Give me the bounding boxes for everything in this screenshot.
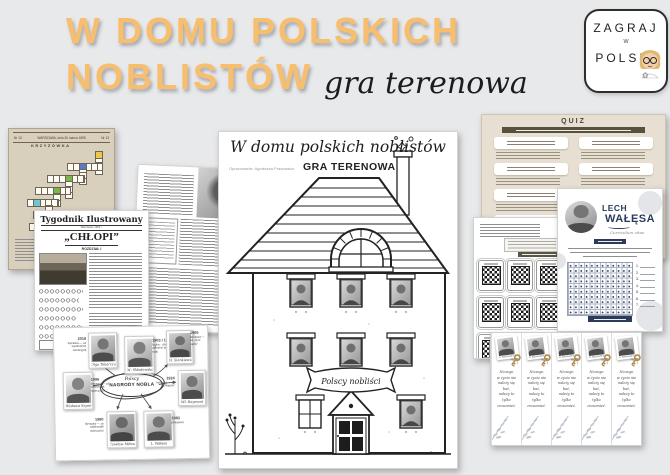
answer-line <box>640 277 655 281</box>
qr-label <box>484 300 498 302</box>
mindmap-card-meta: 1996 literacka — za całokształt twórczoś… <box>91 377 113 393</box>
crossword-run <box>27 199 59 207</box>
walesa-subtitle: Curriculum vitae <box>610 230 644 235</box>
qr-code <box>511 303 530 322</box>
bookmark: M. Skłodowska-Curie Niczego w życiu nie … <box>551 333 581 445</box>
house-byline: Opracowanie: Agnieszka Prasowska <box>229 166 294 171</box>
laurel-branch-icon <box>611 412 630 444</box>
portrait-photo <box>556 337 574 356</box>
window-portraits-row1 <box>287 274 415 313</box>
quiz-question-box <box>579 163 653 175</box>
bookmark-quote: Niczego w życiu nie należy się bać, nale… <box>523 370 550 409</box>
poster-title-line1: W DOMU POLSKICH <box>66 10 461 52</box>
portrait-photo <box>586 337 604 356</box>
walesa-sheet: LECH WAŁĘSA Curriculum vitae 1. 2. 3. 4.… <box>557 188 663 332</box>
answer-row: 4. <box>636 284 655 288</box>
bookmark: M. Skłodowska-Curie Niczego w życiu nie … <box>611 333 641 445</box>
mindmap-photo-card: Wł. Reymont <box>178 370 207 406</box>
crossword-header-right: Nr 13 <box>101 136 109 140</box>
qr-tile <box>507 297 533 328</box>
portrait-photo <box>109 413 134 440</box>
qr-label <box>513 263 527 265</box>
qr-footer-bar <box>518 252 560 257</box>
crossword-title: KRZYŻÓWKA <box>31 143 71 148</box>
quiz-answer-lines <box>496 204 560 212</box>
portrait-photo <box>180 372 203 398</box>
mindmap-photo-card: Olga Tokarczuk <box>88 332 118 368</box>
qr-label <box>542 263 556 265</box>
mindmap-photo-card: Czesław Miłosz <box>106 411 137 448</box>
portrait-photo <box>168 332 190 356</box>
mindmap-card-meta: 2018 literacka — za wyobraźnię narracyjn… <box>60 337 86 353</box>
answer-circles-row <box>39 298 79 303</box>
mindmap-card-meta: 1983 pokojowa <box>171 416 195 425</box>
portrait-photo <box>65 374 90 402</box>
divider <box>65 245 118 246</box>
answer-line <box>640 290 655 294</box>
bookmark-quote: Niczego w życiu nie należy się bać, nale… <box>613 370 640 409</box>
house-banner-label: Polscy nobliści <box>320 377 381 386</box>
house-tagline: GRA TERENOWA <box>303 161 396 173</box>
answer-row: 1. <box>636 264 655 268</box>
answer-line <box>640 271 655 275</box>
mindmap-photo-card: L. Wałęsa <box>143 410 174 447</box>
portrait-photo <box>146 413 171 440</box>
qr-code <box>540 266 559 285</box>
underline-flourish <box>608 225 630 229</box>
bookmark-quote: Niczego w życiu nie należy się bać, nale… <box>583 370 610 409</box>
answer-row: 6. <box>636 297 655 301</box>
qr-label <box>542 300 556 302</box>
window-portraits-row2 <box>287 333 415 366</box>
laurel-branch-icon <box>521 412 540 444</box>
mindmap-card-meta: 1905 literacka — za „Quo vadis” <box>190 331 205 347</box>
newspaper-title: „CHŁOPI” <box>35 231 148 243</box>
mindmap-photo-card: Wisława Szymborska <box>63 372 94 410</box>
portrait-photo <box>127 338 152 366</box>
logo-word-mid: w <box>586 38 666 45</box>
answer-row: 7. <box>636 303 655 307</box>
logo-flower-icon: ✿ <box>642 71 649 80</box>
quiz-title: QUIZ <box>482 118 665 125</box>
bookmark: M. Skłodowska-Curie Niczego w życiu nie … <box>491 333 521 445</box>
zagraj-w-polski-logo: ZAGRAJ w POLSKI ✿ <box>584 9 668 93</box>
text-lines <box>89 253 142 309</box>
bookmark-quote: Niczego w życiu nie należy się bać, nale… <box>493 370 520 409</box>
house-illustration: Polscy nobliści <box>219 132 457 468</box>
crossword-colored-cell <box>33 199 41 207</box>
plant-sprig <box>226 414 244 454</box>
poster-title-line2: NOBLISTÓW <box>66 56 313 98</box>
answer-line <box>640 264 655 268</box>
quiz-question-box <box>494 163 568 175</box>
laurel-branch-icon <box>551 412 570 444</box>
quiz-answer-lines <box>581 152 645 160</box>
mindmap-card-meta: 1980 literacka — za całokształt twórczoś… <box>83 417 103 433</box>
answer-row: 5. <box>636 290 655 294</box>
answer-line <box>640 303 655 307</box>
poster-canvas: W DOMU POLSKICH NOBLISTÓW gra terenowa Z… <box>0 0 670 475</box>
quiz-answer-lines <box>496 178 560 186</box>
crossword-header-center: WARSZAWA, dnia 26 marca 1895 <box>37 136 85 140</box>
quiz-answer-lines <box>581 178 645 186</box>
answer-circles-row <box>39 307 83 312</box>
text-lines <box>508 241 556 249</box>
house-banner: Polscy nobliści <box>307 368 395 392</box>
bookmark-quote: Niczego w życiu nie należy się bać, nale… <box>553 370 580 409</box>
qr-label <box>513 300 527 302</box>
walesa-last-name: WAŁĘSA <box>605 213 655 225</box>
decor-circle <box>557 253 566 269</box>
text-lines <box>570 252 650 255</box>
quiz-question-group <box>492 163 570 186</box>
inset-box <box>504 238 560 252</box>
crossword-header-left: Nr 13 <box>14 136 22 140</box>
qr-code <box>511 266 530 285</box>
letter-grid <box>567 262 633 316</box>
portrait-photo <box>90 335 114 361</box>
quiz-instruction-bar <box>502 127 645 133</box>
qr-tile <box>478 260 504 291</box>
laurel-branch-icon <box>491 412 510 444</box>
qr-tile <box>507 260 533 291</box>
qr-tile <box>478 297 504 328</box>
quiz-question-group <box>577 137 655 160</box>
quiz-question-box <box>494 137 568 149</box>
mindmap-sheet: Polscy NAGRODY NOBLA 2018 literacka — za… <box>53 325 210 462</box>
logo-mascot-icon <box>636 47 664 79</box>
landscape-painting <box>39 253 87 285</box>
qr-label <box>484 263 498 265</box>
quiz-question-box <box>579 137 653 149</box>
answer-line <box>640 297 655 301</box>
quiz-question-group <box>577 163 655 186</box>
qr-code <box>482 266 501 285</box>
text-lines <box>568 248 652 251</box>
crossword-colored-cell <box>95 151 103 159</box>
bookmark: M. Skłodowska-Curie Niczego w życiu nie … <box>581 333 611 445</box>
decor-circle <box>638 191 662 215</box>
mindmap-photo-card: M. Skłodowska-Curie <box>124 336 155 374</box>
text-lines <box>480 224 540 238</box>
poster-subtitle: gra terenowa <box>324 66 528 101</box>
section-chip <box>594 239 626 244</box>
answer-circles-row <box>39 316 77 321</box>
game-cover-sheet: Polscy nobliści W domu polskich noblistó… <box>218 131 458 469</box>
house-title: W domu polskich noblistów <box>219 138 457 156</box>
logo-word-top: ZAGRAJ <box>586 21 666 35</box>
quiz-question-group <box>492 137 570 160</box>
crossword-header: Nr 13 WARSZAWA, dnia 26 marca 1895 Nr 13 <box>13 132 110 143</box>
qr-code <box>540 303 559 322</box>
laurel-branch-icon <box>581 412 600 444</box>
bookmark: M. Skłodowska-Curie Niczego w życiu nie … <box>521 333 551 445</box>
answer-row: 3. <box>636 277 655 281</box>
qr-code <box>482 303 501 322</box>
answer-line <box>640 284 655 288</box>
newspaper-chapter: ROZDZIAŁ I <box>35 247 148 251</box>
portrait-photo <box>616 337 634 356</box>
answer-circles-row <box>39 289 83 294</box>
bookmarks-sheet: M. Skłodowska-Curie Niczego w życiu nie … <box>490 332 642 446</box>
text-lines <box>138 267 230 327</box>
newspaper-masthead: Tygodnik Ilustrowany <box>35 215 148 225</box>
newspaper-dateline: Warszawa, 1904 r. <box>35 226 148 229</box>
answer-row: 2. <box>636 271 655 275</box>
portrait-photo <box>526 337 544 356</box>
walesa-photo <box>565 201 597 233</box>
portrait-photo <box>496 337 514 356</box>
quiz-answer-lines <box>496 152 560 160</box>
text-lines <box>583 256 637 259</box>
walesa-first-name: LECH <box>602 203 627 213</box>
password-bar <box>588 316 632 322</box>
mindmap-card-meta: 1924 literacka — za „Chłopów” <box>155 376 175 388</box>
text-lines <box>143 173 195 215</box>
